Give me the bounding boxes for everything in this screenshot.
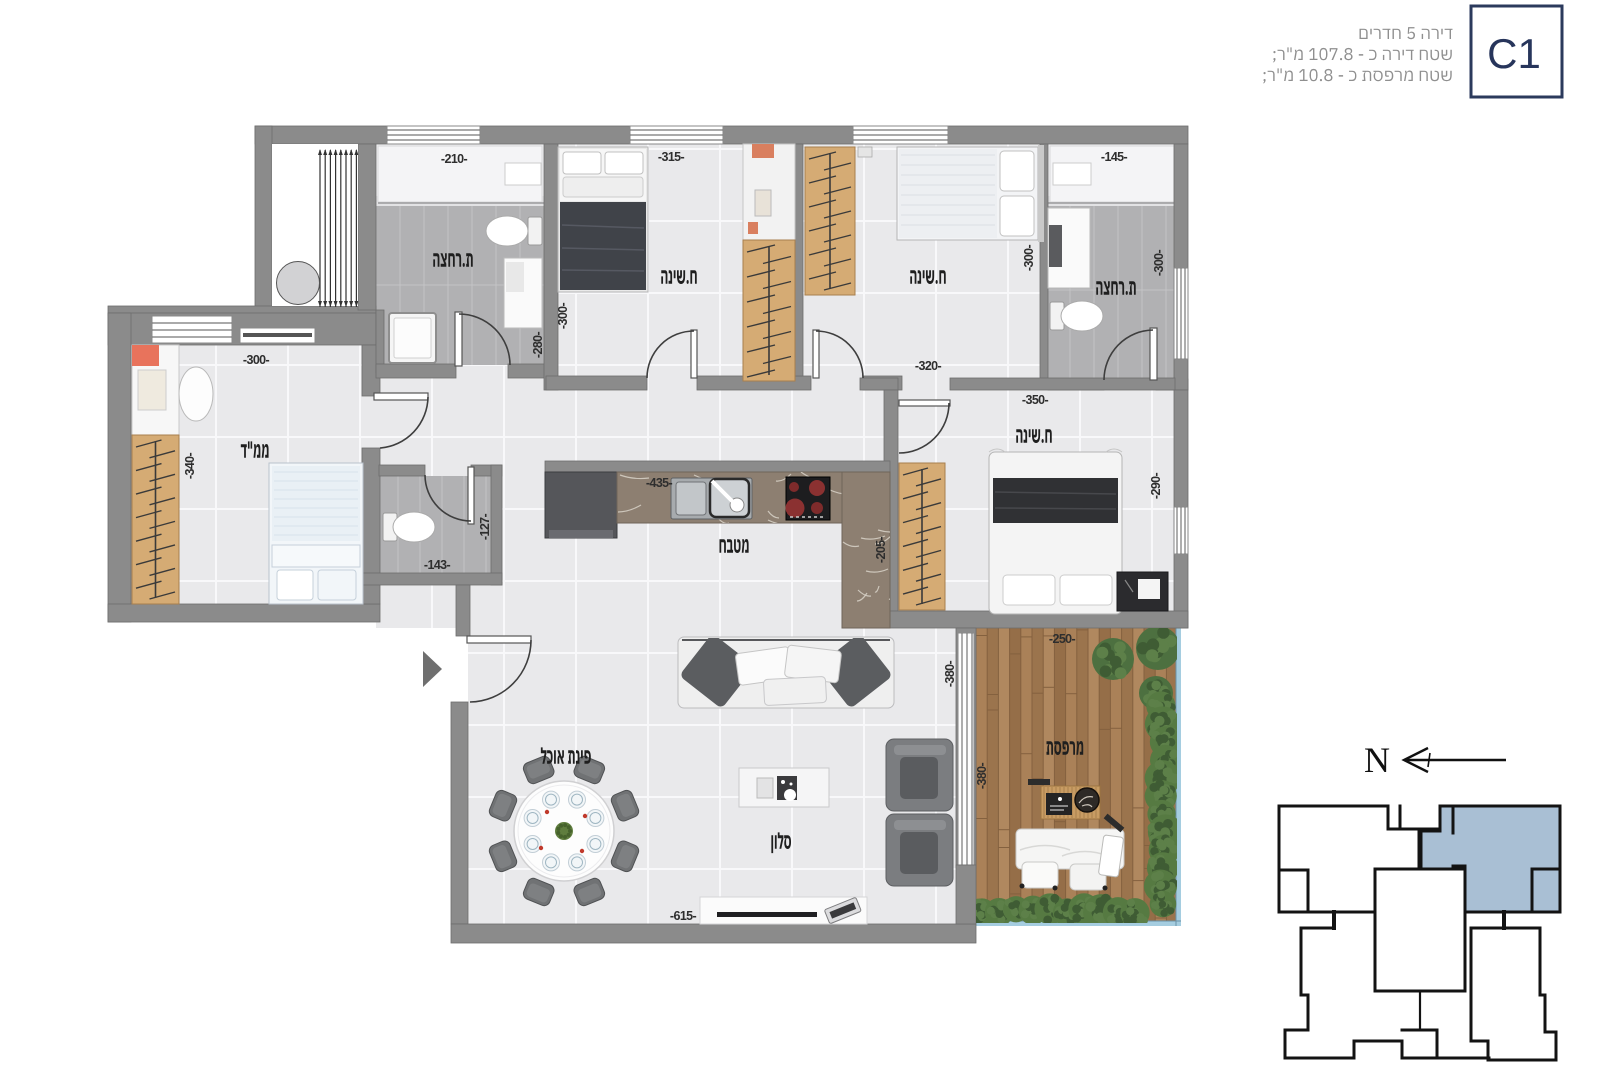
svg-text:-300-: -300-	[243, 353, 270, 367]
svg-text:-205-: -205-	[874, 536, 888, 563]
svg-text:-280-: -280-	[531, 331, 545, 358]
svg-text:-380-: -380-	[975, 762, 989, 789]
svg-text:-315-: -315-	[658, 150, 685, 164]
svg-text:-210-: -210-	[441, 152, 468, 166]
svg-text:-435-: -435-	[646, 476, 673, 490]
svg-text:-615-: -615-	[670, 909, 697, 923]
svg-text:N: N	[1364, 740, 1390, 780]
svg-text:-300-: -300-	[1022, 244, 1036, 271]
svg-text:C1: C1	[1487, 30, 1541, 77]
svg-text:-300-: -300-	[556, 302, 570, 329]
svg-text:-250-: -250-	[1049, 632, 1076, 646]
svg-text:-320-: -320-	[915, 359, 942, 373]
svg-text:-143-: -143-	[424, 558, 451, 572]
svg-text:-380-: -380-	[943, 660, 957, 687]
svg-text:-290-: -290-	[1149, 472, 1163, 499]
svg-text:-127-: -127-	[478, 513, 492, 540]
svg-text:-300-: -300-	[1152, 249, 1166, 276]
svg-text:-350-: -350-	[1022, 393, 1049, 407]
svg-text:-340-: -340-	[183, 452, 197, 479]
svg-text:-145-: -145-	[1101, 150, 1128, 164]
